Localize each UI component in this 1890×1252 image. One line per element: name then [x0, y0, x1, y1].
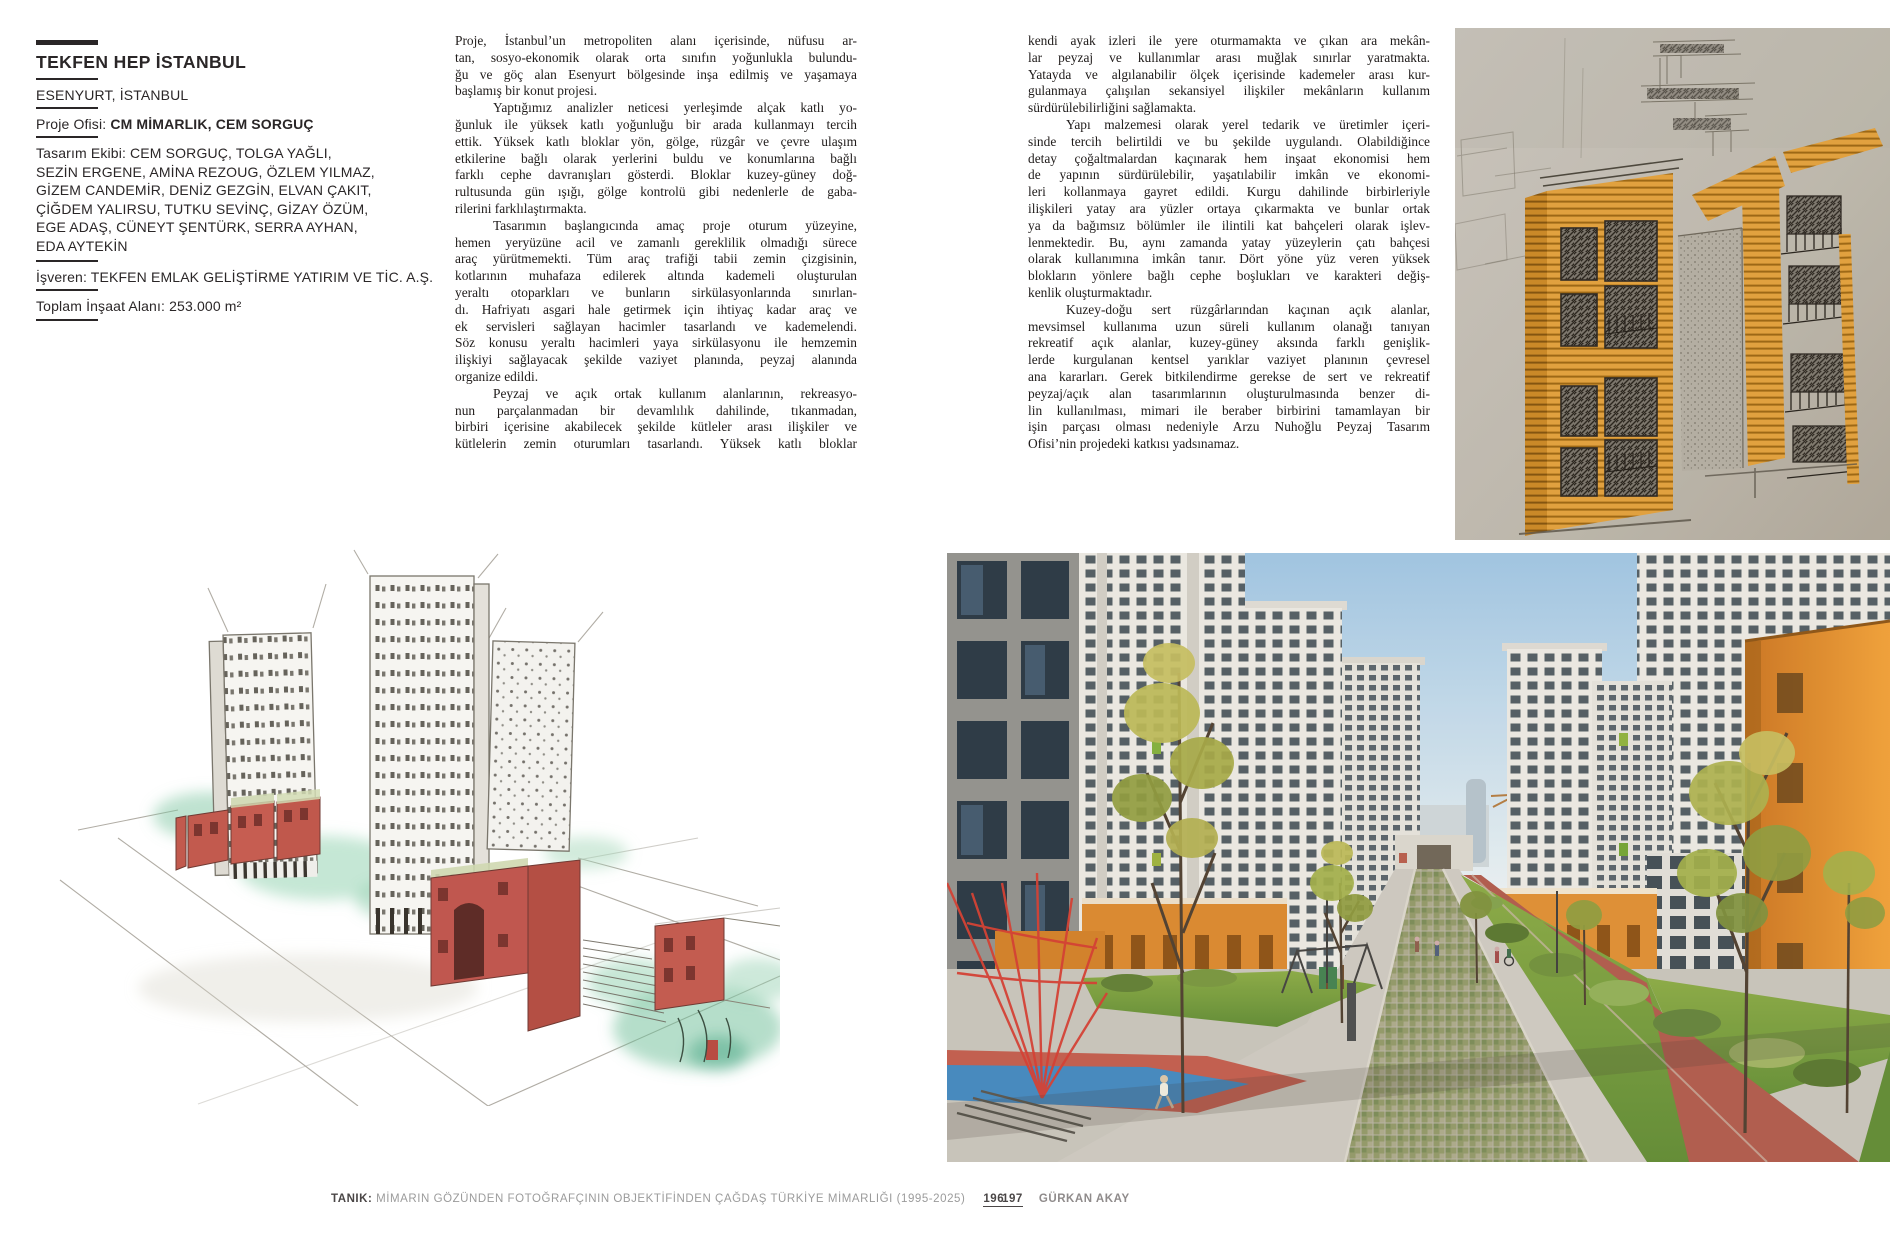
body-line: tan, sosyo-ekonomik olarak orta sınıfın …: [455, 50, 857, 67]
body-line: Peyzaj ve açık ortak kullanım alanlarını…: [455, 386, 857, 403]
body-line: Yapı malzemesi olarak yerel tedarik ve ü…: [1028, 117, 1430, 134]
body-line: rultusunda gün ışığı, gölge kontrolü gib…: [455, 184, 857, 201]
divider: [36, 78, 98, 80]
body-line: Proje, İstanbul’un metropoliten alanı iç…: [455, 33, 857, 50]
body-line: ek servisleri sağlayan hacimler tasarlan…: [455, 319, 857, 336]
body-line: kenlik oluşturmaktadır.: [1028, 285, 1430, 302]
body-line: birbiri içerisine akabilecek şekilde küt…: [455, 419, 857, 436]
body-line: ilişkileri yatay ara yüzler ortaya çıkar…: [1028, 201, 1430, 218]
body-line: organize edildi.: [455, 369, 857, 386]
body-line: ilişkiyi sağlayacak şekilde vaziyet plan…: [455, 352, 857, 369]
office-label: Proje Ofisi:: [36, 116, 110, 132]
body-line: dı. Hafriyatı asgari hale getirmek için …: [455, 302, 857, 319]
body-line: hemen yeryüzüne acil ve zamanlı gereklil…: [455, 235, 857, 252]
body-line: blokların yönlere bağlı cephe boşlukları…: [1028, 268, 1430, 285]
body-line: etkilerine bağlı olarak yerlerini buldu …: [455, 151, 857, 168]
body-line: rekreatif açık alanlar, kuzey-güney aksı…: [1028, 335, 1430, 352]
body-line: kütlelerin zemin oturumları tasarlandı. …: [455, 436, 857, 453]
project-location: ESENYURT, İSTANBUL: [36, 86, 388, 104]
body-line: olarak kullanımına imkân tanır. Dört yön…: [1028, 251, 1430, 268]
photographer-credit: GÜRKAN AKAY: [1039, 1193, 1130, 1205]
body-line: ya da bağımsız bölümler ile ilintili kat…: [1028, 218, 1430, 235]
body-line: lin kullanılması, mimari ile beraber bir…: [1028, 403, 1430, 420]
total-area: Toplam İnşaat Alanı: 253.000 m²: [36, 297, 388, 315]
tower-3: [487, 641, 575, 851]
project-office: Proje Ofisi: CM MİMARLIK, CEM SORGUÇ: [36, 115, 388, 133]
body-line: işin parçası olması nedeniyle Arzu Nuhoğ…: [1028, 419, 1430, 436]
divider: [36, 107, 98, 109]
courtyard-photo-figure: [947, 553, 1890, 1162]
footer-book-label: TANIK:: [331, 1193, 372, 1205]
meta-line: ÇİĞDEM YALIRSU, TUTKU SEVİNÇ, GİZAY ÖZÜM…: [36, 200, 388, 219]
body-line: nun parçalanmadan bir devamlılık dahilin…: [455, 403, 857, 420]
office-value: CM MİMARLIK, CEM SORGUÇ: [110, 116, 313, 132]
watercolor-sketch-image: [58, 548, 780, 1106]
meta-line: EGE ADAŞ, CÜNEYT ŞENTÜRK, SERRA AYHAN,: [36, 218, 388, 237]
body-line: leri kollanmaya gayret edildi. Kurgu dah…: [1028, 184, 1430, 201]
project-title: TEKFEN HEP İSTANBUL: [36, 52, 388, 72]
body-line: Söz konusu yeraltı hacimleri yaya sirkül…: [455, 335, 857, 352]
client: İşveren: TEKFEN EMLAK GELİŞTİRME YATIRIM…: [36, 268, 388, 286]
body-line: sinde tercih belirtildi ve bu şekilde uy…: [1028, 134, 1430, 151]
book-spread: TEKFEN HEP İSTANBUL ESENYURT, İSTANBUL P…: [0, 0, 1890, 1252]
body-line: rilerini farklılaştırmakta.: [455, 201, 857, 218]
body-line: Tasarımın başlangıcında amaç proje oturu…: [455, 218, 857, 235]
footer-right: 197GÜRKAN AKAY: [1002, 1193, 1130, 1205]
body-line: gulanmaya çalışılan sekansiyel ilişkiler…: [1028, 83, 1430, 100]
body-line: mevsimsel kullanıma uzun süreli kullanım…: [1028, 319, 1430, 336]
body-line: yeraltı otoparkları ve bunların sirkülas…: [455, 285, 857, 302]
body-column-1: Proje, İstanbul’un metropoliten alanı iç…: [455, 33, 857, 453]
divider: [36, 289, 98, 291]
body-line: farklı cephe davranışları gösterdi. Blok…: [455, 167, 857, 184]
body-column-2: kendi ayak izleri ile yere oturmamakta v…: [1028, 33, 1430, 453]
body-line: başlamış bir konut projesi.: [455, 83, 857, 100]
body-line: araç yürütmemekti. Tüm araç trafiği tabi…: [455, 251, 857, 268]
body-line: lar peyzaj ve kullanımlar arası muğlak s…: [1028, 50, 1430, 67]
body-line: Ofisi’nin projedeki katkısı yadsınamaz.: [1028, 436, 1430, 453]
body-line: Yatayda ve algılanabilir ölçek içerisind…: [1028, 67, 1430, 84]
divider: [36, 319, 98, 321]
body-line: peyzaj/açık alan tasarımlarının oluşturu…: [1028, 386, 1430, 403]
body-line: de yapının sürdürülebilir, yaşatılabilir…: [1028, 167, 1430, 184]
body-line: kendi ayak izleri ile yere oturmamakta v…: [1028, 33, 1430, 50]
body-line: ettik. Yüksek katlı bloklar yön, gölge, …: [455, 134, 857, 151]
divider: [36, 40, 98, 45]
footer-left: TANIK: MİMARIN GÖZÜNDEN FOTOĞRAFÇININ OB…: [331, 1193, 1004, 1205]
body-line: ana kararları. Gerek bitkilendirme gerek…: [1028, 369, 1430, 386]
footer-book-title: MİMARIN GÖZÜNDEN FOTOĞRAFÇININ OBJEKTİFİ…: [372, 1193, 965, 1205]
body-line: detay çoğaltmalardan kaçınarak hem inşaa…: [1028, 151, 1430, 168]
marker-sketch-figure: [1455, 28, 1890, 540]
divider: [36, 260, 98, 262]
meta-line: Tasarım Ekibi: CEM SORGUÇ, TOLGA YAĞLI,: [36, 144, 388, 163]
marker-sketch-image: [1455, 28, 1890, 540]
page-number-right: 197: [1002, 1193, 1023, 1207]
body-line: Kuzey-doğu sert rüzgârlarından kaçınan a…: [1028, 302, 1430, 319]
body-line: ğu ve göç alan Esenyurt bölgesinde inşa …: [455, 67, 857, 84]
divider: [36, 136, 98, 138]
body-line: ğunluk ile yüksek katlı yoğunluğu bir ar…: [455, 117, 857, 134]
meta-line: SEZİN ERGENE, AMİNA REZOUG, ÖZLEM YILMAZ…: [36, 163, 388, 182]
body-line: lenmektedir. Bu, aynı zamanda yatay yüze…: [1028, 235, 1430, 252]
courtyard-photo-image: [947, 553, 1890, 1162]
body-line: lerde kurgulanan kentsel yarıklar vaziye…: [1028, 352, 1430, 369]
meta-line: EDA AYTEKİN: [36, 237, 388, 256]
body-line: sürdürülebilirliğini sağlamakta.: [1028, 100, 1430, 117]
body-line: Yaptığımız analizler neticesi yerleşimde…: [455, 100, 857, 117]
watercolor-sketch-figure: [58, 548, 780, 1106]
project-info: TEKFEN HEP İSTANBUL ESENYURT, İSTANBUL P…: [36, 40, 388, 327]
body-line: kotlarının muhafaza edilerek altında kad…: [455, 268, 857, 285]
meta-line: GİZEM CANDEMİR, DENİZ GEZGİN, ELVAN ÇAKI…: [36, 181, 388, 200]
design-team: Tasarım Ekibi: CEM SORGUÇ, TOLGA YAĞLI,S…: [36, 144, 388, 256]
